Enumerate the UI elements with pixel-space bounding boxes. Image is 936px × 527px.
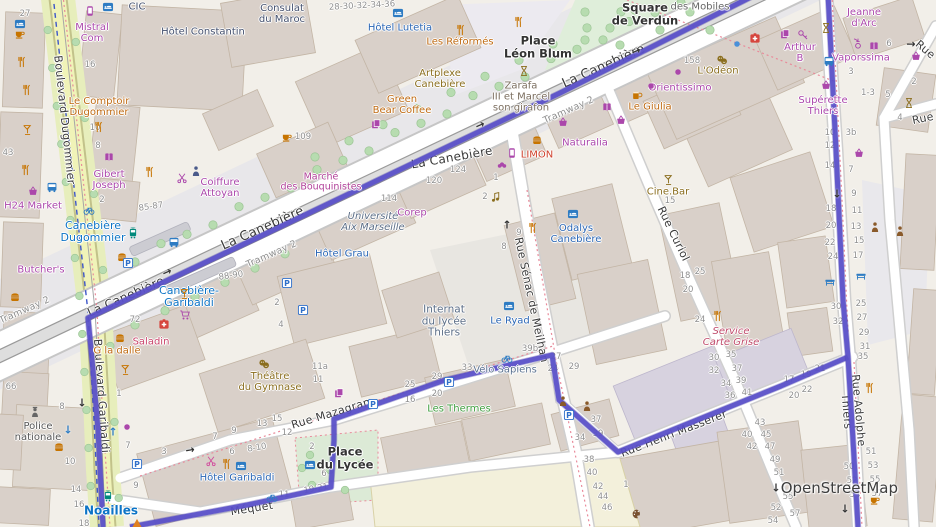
cafe-icon (15, 29, 26, 40)
pharmacy-icon (159, 319, 170, 330)
bicycle-icon (267, 492, 278, 503)
restaurant-icon (514, 17, 525, 28)
parking-icon (564, 410, 575, 421)
fastfood-icon (10, 292, 21, 303)
supermarket-icon (821, 80, 832, 91)
copyshop-icon (371, 119, 382, 130)
bed-icon (236, 461, 247, 472)
bar-icon (663, 175, 674, 186)
pub-icon (632, 90, 643, 101)
poi-label: Place Léon Blum (504, 34, 572, 59)
poi-label: Butcher's (17, 265, 64, 276)
fastfood-icon (54, 442, 65, 453)
people-icon (191, 166, 202, 177)
copyshop-icon (780, 29, 791, 40)
bus-stop-icon (169, 237, 180, 248)
bus-stop-icon (47, 182, 58, 193)
map-view[interactable]: P B (0, 0, 936, 527)
restaurant-icon (713, 311, 724, 322)
restaurant-icon (528, 223, 539, 234)
oneway-arrow-icon: → (184, 443, 195, 457)
restaurant-icon (21, 165, 32, 176)
poi-label: Le Giulia (628, 102, 671, 113)
bench-icon (825, 277, 836, 288)
supermarket-icon (28, 186, 39, 197)
phone-shop-icon (507, 148, 518, 159)
poi-label: Théâtre du Gymnase (238, 371, 301, 393)
poi-label: Consulat du Maroc (259, 3, 305, 25)
poi-label: Le Comptoir Dugommier (69, 96, 130, 118)
bed-icon (103, 2, 114, 13)
toilets-icon (582, 401, 593, 412)
peak-icon (132, 518, 143, 527)
oneway-arrow-icon: → (629, 43, 643, 59)
oneway-arrow-icon: ↓ (77, 397, 86, 410)
poi-label: Université Aix Marseille (341, 211, 404, 233)
poi-dot-icon (732, 39, 743, 50)
parking-icon (123, 258, 134, 269)
restaurant-icon (456, 25, 467, 36)
poi-label: Internat du lycée Thiers (422, 305, 466, 340)
restaurant-icon (17, 57, 28, 68)
parking-icon (368, 399, 379, 410)
books-icon (602, 102, 613, 113)
tram-stop-icon (128, 228, 139, 239)
poi-label: Les Thermes (427, 404, 491, 415)
poi-label: H24 Market (4, 201, 62, 212)
poi-label: Arthur B (784, 42, 816, 64)
police-icon (30, 407, 41, 418)
locksmith-icon (798, 30, 809, 41)
phone-shop-icon (85, 6, 96, 17)
monument-icon (904, 98, 915, 109)
poi-label: Mistral Com (75, 22, 109, 44)
poi-label: Noailles (84, 504, 138, 517)
poi-label: Vélo Sapiens (473, 365, 537, 376)
oneway-arrow-icon: → (906, 38, 915, 51)
metro-icon (824, 56, 835, 67)
toilets-icon (895, 226, 906, 237)
poi-label: CIC (129, 2, 146, 13)
poi-label: Jeanne d'Arc (847, 7, 881, 29)
oneway-arrow-icon: → (473, 117, 487, 133)
hairdresser-icon (206, 456, 217, 467)
tram-stop-icon (103, 491, 114, 502)
supermarket-icon (854, 148, 865, 159)
bed-icon (568, 209, 579, 220)
poi-layer: OpenStreetMap CICMistral ComHôtel Consta… (0, 0, 936, 527)
poi-label: Hôtel Constantin (161, 27, 245, 38)
music-icon (491, 192, 502, 203)
supermarket-icon (558, 117, 569, 128)
bed-icon (305, 460, 316, 471)
shop-dot-icon (646, 81, 657, 92)
poi-label: Marché des Bouquinistes (280, 173, 361, 194)
poi-label: LIMON (521, 150, 554, 161)
poi-label: Hôtel Garibaldi (200, 473, 275, 484)
oneway-arrow-icon: ↓ (63, 424, 72, 437)
monument-icon (519, 66, 530, 77)
poi-label: G la dalle (93, 346, 140, 357)
theatre-icon (259, 359, 270, 370)
poi-label: Les Réformés (426, 37, 493, 48)
shop-dot-icon (122, 422, 133, 433)
theatre-icon (717, 55, 728, 66)
cafe-icon (282, 132, 293, 143)
bakery-icon (497, 160, 508, 171)
poi-label: Gibert Joseph (92, 169, 125, 191)
oneway-arrow-icon: ↑ (108, 426, 117, 439)
cafe-icon (870, 495, 881, 506)
monument-icon (821, 23, 832, 34)
bar-icon (179, 289, 190, 300)
poi-label: Artplexe Canebière (415, 68, 466, 90)
oneway-arrow-icon: ↓ (832, 188, 841, 201)
fastfood-icon (532, 135, 543, 146)
bar-icon (22, 125, 33, 136)
oneway-arrow-icon: ↓ (840, 503, 849, 516)
poi-label: Zarafa III et Marcel son girafon (492, 81, 550, 114)
toilets-icon (870, 222, 881, 233)
poi-label: Hôtel Lutetia (368, 23, 432, 34)
restaurant-icon (222, 459, 233, 470)
bed-icon (393, 8, 404, 19)
bed-icon (504, 301, 515, 312)
poi-label: Square de Verdun (612, 1, 678, 26)
toilets-icon (558, 396, 569, 407)
poi-label: des Mobiles (671, 2, 730, 13)
hookah-icon (853, 38, 864, 49)
shopping-cart-icon (180, 310, 191, 321)
fastfood-icon (115, 333, 126, 344)
bench-icon (856, 271, 867, 282)
restaurant-icon (145, 167, 156, 178)
oneway-arrow-icon: ↓ (771, 482, 780, 495)
books-icon (869, 41, 880, 52)
poi-label: Corep (397, 208, 427, 219)
restaurant-icon (22, 85, 33, 96)
books-icon (104, 152, 115, 163)
oneway-arrow-icon: ↑ (502, 219, 511, 232)
poi-label: Place du Lycée (317, 445, 374, 470)
poi-label: Vaporssima (832, 53, 890, 64)
parking-icon (132, 459, 143, 470)
parking-icon (298, 305, 309, 316)
poi-label: Police nationale (15, 421, 62, 443)
supermarket-icon (616, 115, 627, 126)
poi-label: Odalys Canebière (551, 223, 602, 245)
restaurant-icon (94, 122, 105, 133)
supermarket-icon (911, 51, 922, 62)
poi-label: Le Ryad (490, 316, 530, 327)
poi-label: L'Odéon (697, 66, 738, 77)
poi-label: Canebière Dugommier (61, 220, 126, 244)
parking-icon (444, 377, 455, 388)
bicycle-icon (502, 353, 513, 364)
poi-label: Green Bear Coffee (373, 94, 432, 116)
copyshop-icon (334, 388, 345, 399)
shop-dot-icon (673, 67, 684, 78)
artwork-icon (632, 509, 643, 520)
poi-label: Orientissimo (648, 83, 711, 94)
poi-label: Hôtel Grau (315, 249, 369, 260)
poi-label: Coiffure Attoyan (200, 177, 239, 199)
restaurant-icon (865, 383, 876, 394)
poi-label: Naturalia (562, 138, 608, 149)
poi-label: Service Carte Grise (703, 326, 759, 348)
parking-icon (282, 278, 293, 289)
oneway-arrow-icon: → (160, 264, 174, 280)
pharmacy-icon (750, 33, 761, 44)
poi-label: Supérette Thiers (798, 95, 847, 117)
bar-icon (120, 365, 131, 376)
hairdresser-icon (177, 173, 188, 184)
poi-label: Cine.Bar (647, 187, 690, 198)
bicycle-icon (84, 205, 95, 216)
